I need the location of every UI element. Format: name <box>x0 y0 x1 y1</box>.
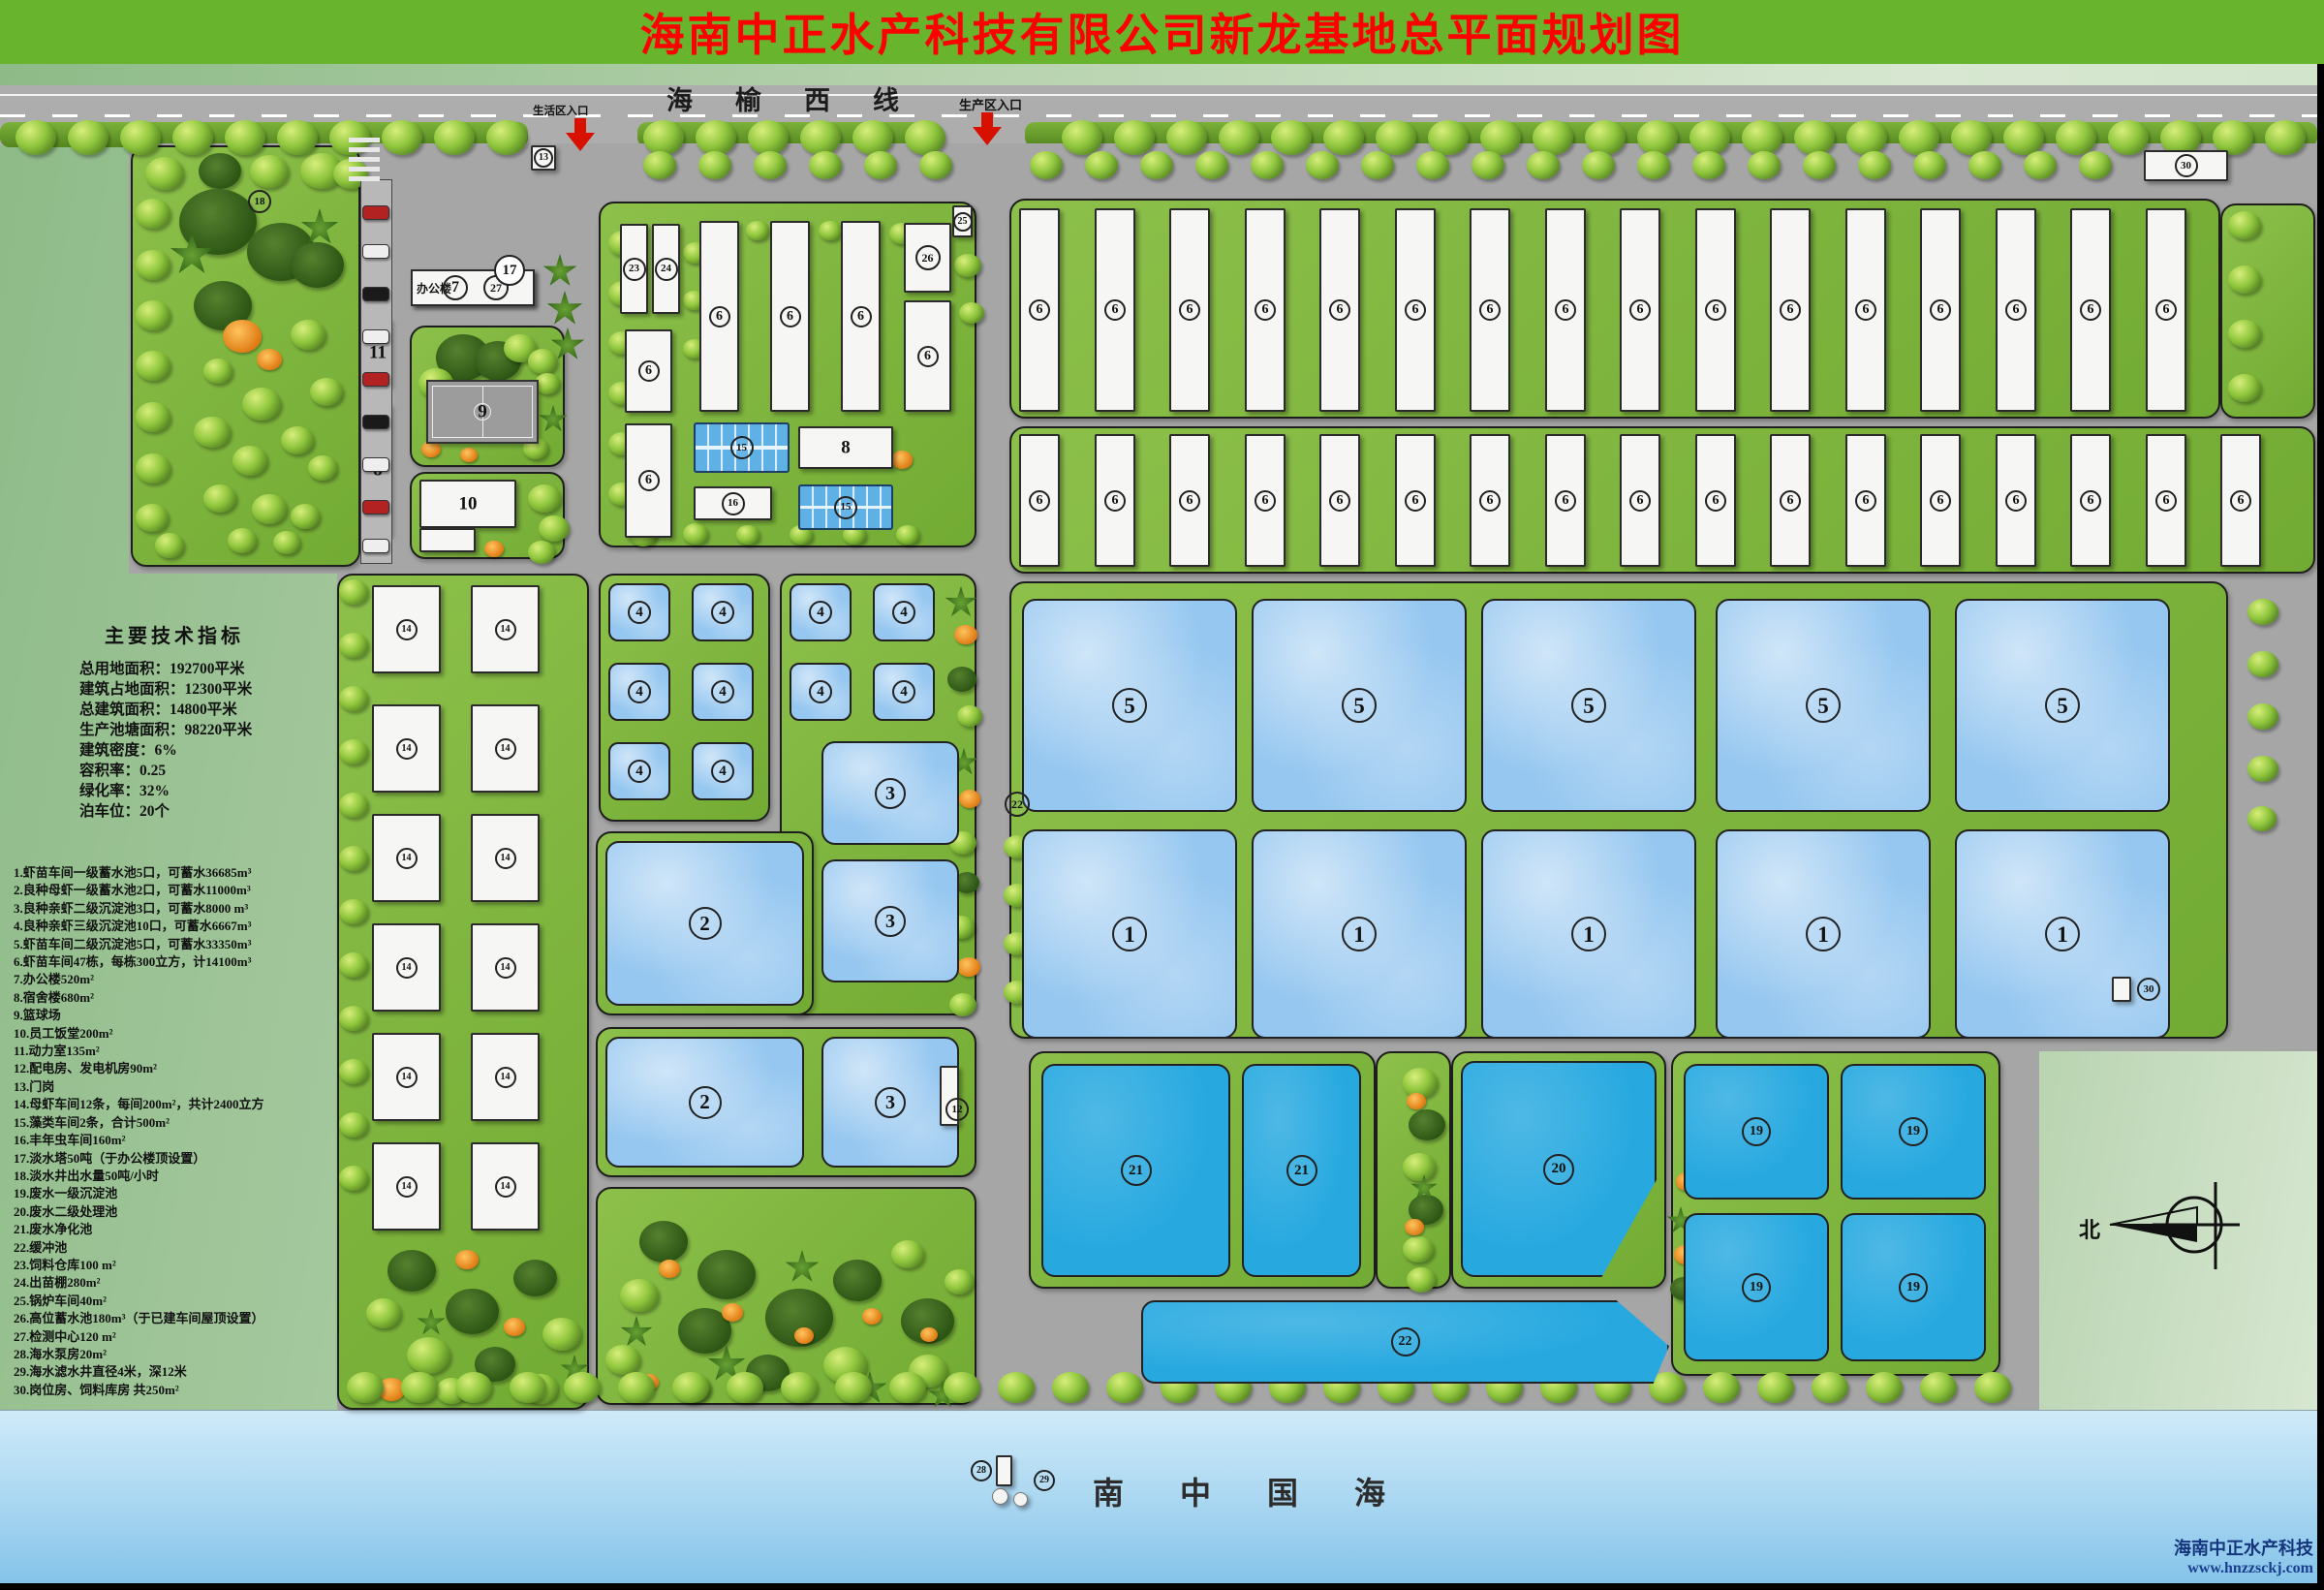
indicator-line: 总建筑面积：14800平米 <box>79 700 360 720</box>
arrow-down-icon <box>973 127 1002 145</box>
legend-item: 29.海水滤水井直径4米，深12米 <box>14 1363 343 1381</box>
office-label: 办公楼 <box>417 280 451 296</box>
legend-item: 25.锅炉车间40m² <box>14 1293 343 1310</box>
indicator-line: 建筑占地面积：12300平米 <box>79 679 360 700</box>
site-roads-south <box>337 574 2317 1410</box>
legend-item: 16.丰年虫车间160m² <box>14 1132 343 1149</box>
office-building: 办公楼 <box>411 269 535 306</box>
basketball-court <box>426 380 539 444</box>
arrow-down-icon <box>981 112 993 127</box>
road-edge-line <box>0 94 2324 96</box>
watermark: 海南中正水产科技 www.hnzzsckj.com <box>2063 1535 2313 1577</box>
legend-item: 27.检测中心120 m² <box>14 1328 343 1346</box>
compass-north-label: 北 <box>2079 1213 2100 1244</box>
sea-label: 南中国海 <box>1093 1469 1441 1513</box>
legend-item: 18.淡水井出水量50吨/小时 <box>14 1168 343 1185</box>
legend-item: 21.废水净化池 <box>14 1221 343 1238</box>
indicator-line: 生产池塘面积：98220平米 <box>79 720 360 740</box>
legend-item: 2.良种母虾一级蓄水池2口，可蓄水11000m³ <box>14 882 343 899</box>
legend-item: 15.藻类车间2条，合计500m² <box>14 1114 343 1132</box>
entrance-production: 生产区入口 <box>959 95 1066 155</box>
legend-item: 28.海水泵房20m² <box>14 1346 343 1363</box>
legend-list: 1.虾苗车间一级蓄水池5口，可蓄水36685m³2.良种母虾一级蓄水池2口，可蓄… <box>14 864 343 1399</box>
legend-item: 19.废水一级沉淀池 <box>14 1185 343 1202</box>
court-center-circle <box>474 403 491 421</box>
arrow-down-icon <box>574 118 586 133</box>
indicators-title: 主要技术指标 <box>58 620 291 648</box>
indicator-line: 泊车位：20个 <box>79 801 360 822</box>
border-right <box>2317 64 2324 1590</box>
legend-item: 23.饲料仓库100 m² <box>14 1257 343 1274</box>
arrow-down-icon <box>566 133 595 151</box>
road-name: 海榆西线 <box>666 79 942 117</box>
indicator-line: 总用地面积：192700平米 <box>79 659 360 679</box>
compass: 北 <box>2073 1180 2243 1272</box>
legend-item: 7.办公楼520m² <box>14 971 343 988</box>
indicator-line: 建筑密度：6% <box>79 740 360 761</box>
legend-item: 20.废水二级处理池 <box>14 1203 343 1221</box>
legend-item: 24.出苗棚280m² <box>14 1274 343 1292</box>
site-roads-north <box>129 143 2317 574</box>
legend-item: 17.淡水塔50吨（于办公楼顶设置） <box>14 1150 343 1168</box>
legend-item: 4.良种亲虾三级沉淀池10口，可蓄水6667m³ <box>14 918 343 935</box>
legend-item: 3.良种亲虾二级沉淀池3口，可蓄水8000 m³ <box>14 900 343 918</box>
entrance-living: 生活区入口 <box>533 103 639 163</box>
legend-item: 22.缓冲池 <box>14 1239 343 1257</box>
legend-item: 1.虾苗车间一级蓄水池5口，可蓄水36685m³ <box>14 864 343 882</box>
indicator-line: 绿化率：32% <box>79 781 360 801</box>
entrance-living-label: 生活区入口 <box>533 103 639 118</box>
legend-item: 11.动力室135m² <box>14 1043 343 1060</box>
legend-item: 9.篮球场 <box>14 1007 343 1024</box>
legend-item: 26.高位蓄水池180m³（于已建车间屋顶设置） <box>14 1310 343 1327</box>
legend-item: 8.宿舍楼680m² <box>14 989 343 1007</box>
legend-item: 12.配电房、发电机房90m² <box>14 1060 343 1077</box>
site-plan-canvas: 海南中正水产科技有限公司新龙基地总平面规划图 海榆西线 南中国海 办公楼 生活区… <box>0 0 2324 1590</box>
watermark-company: 海南中正水产科技 <box>2063 1535 2313 1560</box>
road-center-dashes <box>0 114 2324 117</box>
page-title: 海南中正水产科技有限公司新龙基地总平面规划图 <box>640 0 1685 64</box>
legend-item: 30.岗位房、饲料库房 共250m² <box>14 1382 343 1399</box>
legend-item: 5.虾苗车间二级沉淀池5口，可蓄水33350m³ <box>14 936 343 953</box>
border-bottom <box>0 1583 2324 1590</box>
watermark-url: www.hnzzsckj.com <box>2063 1560 2313 1577</box>
legend-item: 6.虾苗车间47栋，每栋300立方，计14100m³ <box>14 953 343 971</box>
entrance-production-label: 生产区入口 <box>959 95 1066 113</box>
indicators-list: 总用地面积：192700平米建筑占地面积：12300平米总建筑面积：14800平… <box>79 659 360 822</box>
legend-item: 14.母虾车间12条，每间200m²，共计2400立方 <box>14 1096 343 1113</box>
zebra-crossing <box>349 136 380 186</box>
legend-item: 13.门岗 <box>14 1078 343 1096</box>
legend-item: 10.员工饭堂200m² <box>14 1025 343 1043</box>
indicator-line: 容积率：0.25 <box>79 761 360 781</box>
parking-strip <box>360 179 392 564</box>
sea: 南中国海 <box>0 1410 2324 1590</box>
title-bar: 海南中正水产科技有限公司新龙基地总平面规划图 <box>0 0 2324 64</box>
